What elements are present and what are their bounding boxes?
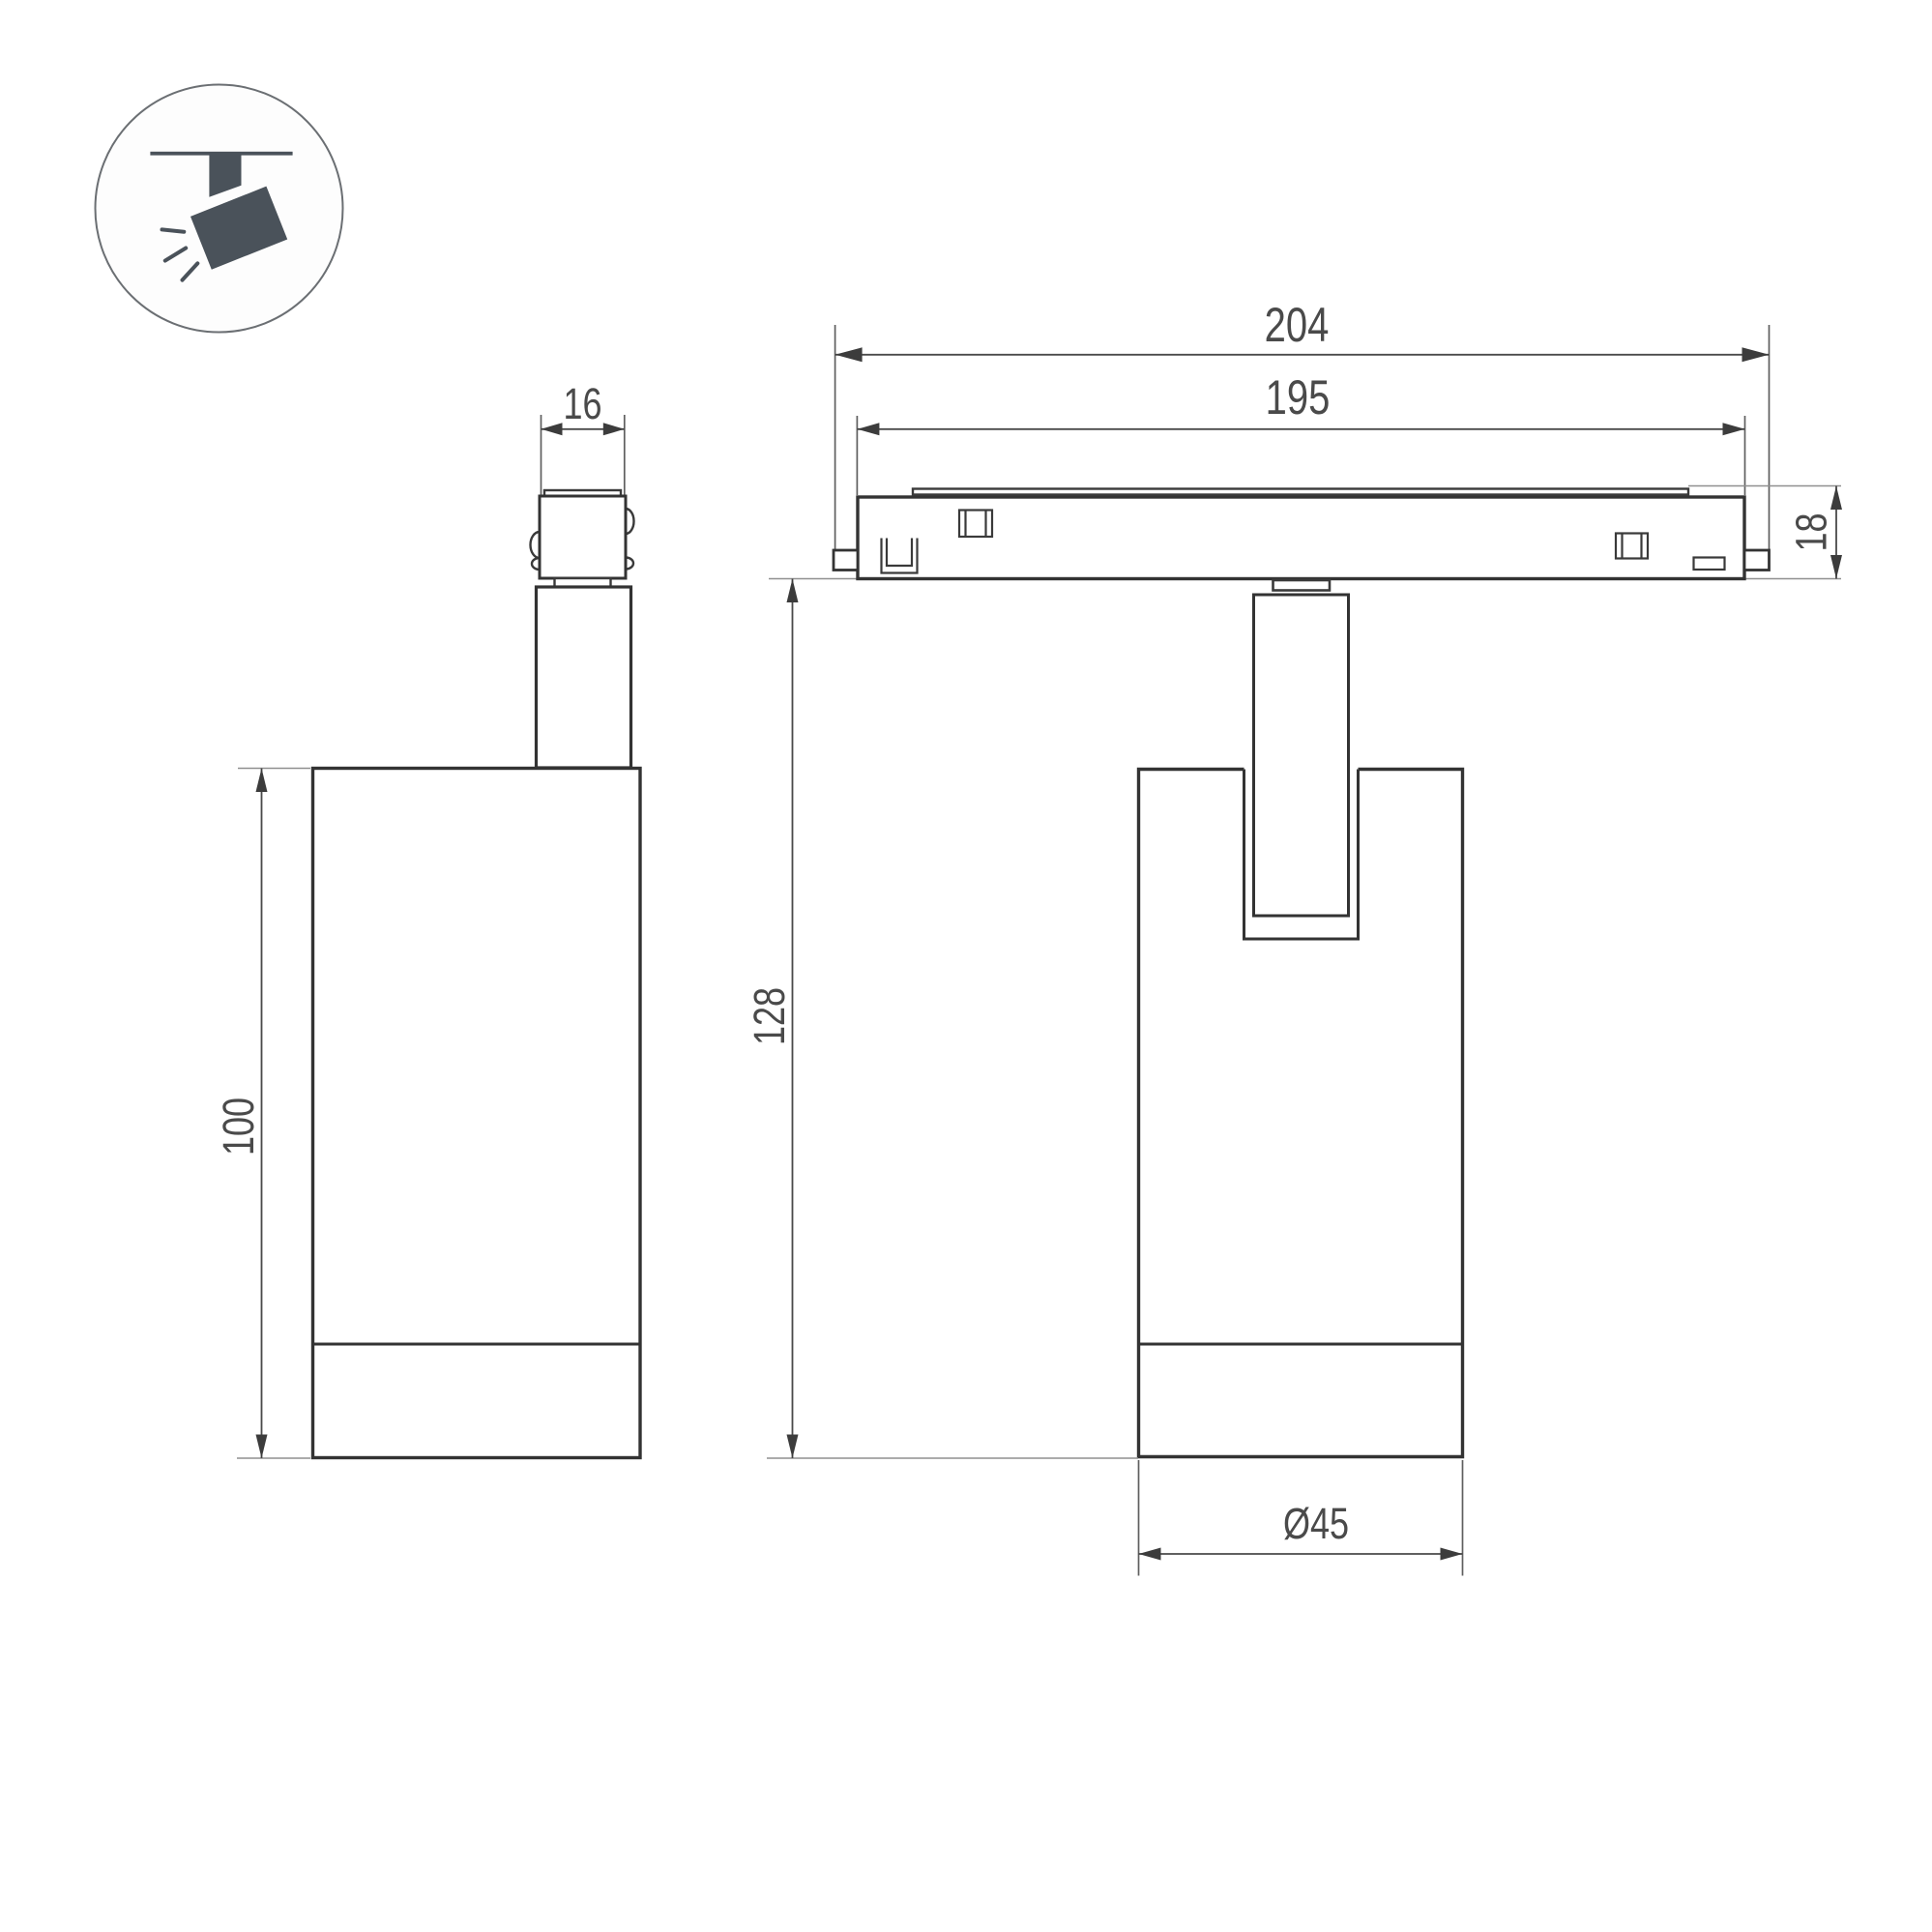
svg-text:204: 204 bbox=[1265, 298, 1330, 352]
svg-text:195: 195 bbox=[1266, 370, 1331, 424]
svg-text:18: 18 bbox=[1787, 512, 1836, 551]
svg-text:128: 128 bbox=[745, 987, 794, 1045]
svg-text:100: 100 bbox=[214, 1098, 263, 1156]
svg-text:Ø45: Ø45 bbox=[1283, 1499, 1349, 1548]
svg-text:16: 16 bbox=[563, 379, 601, 428]
